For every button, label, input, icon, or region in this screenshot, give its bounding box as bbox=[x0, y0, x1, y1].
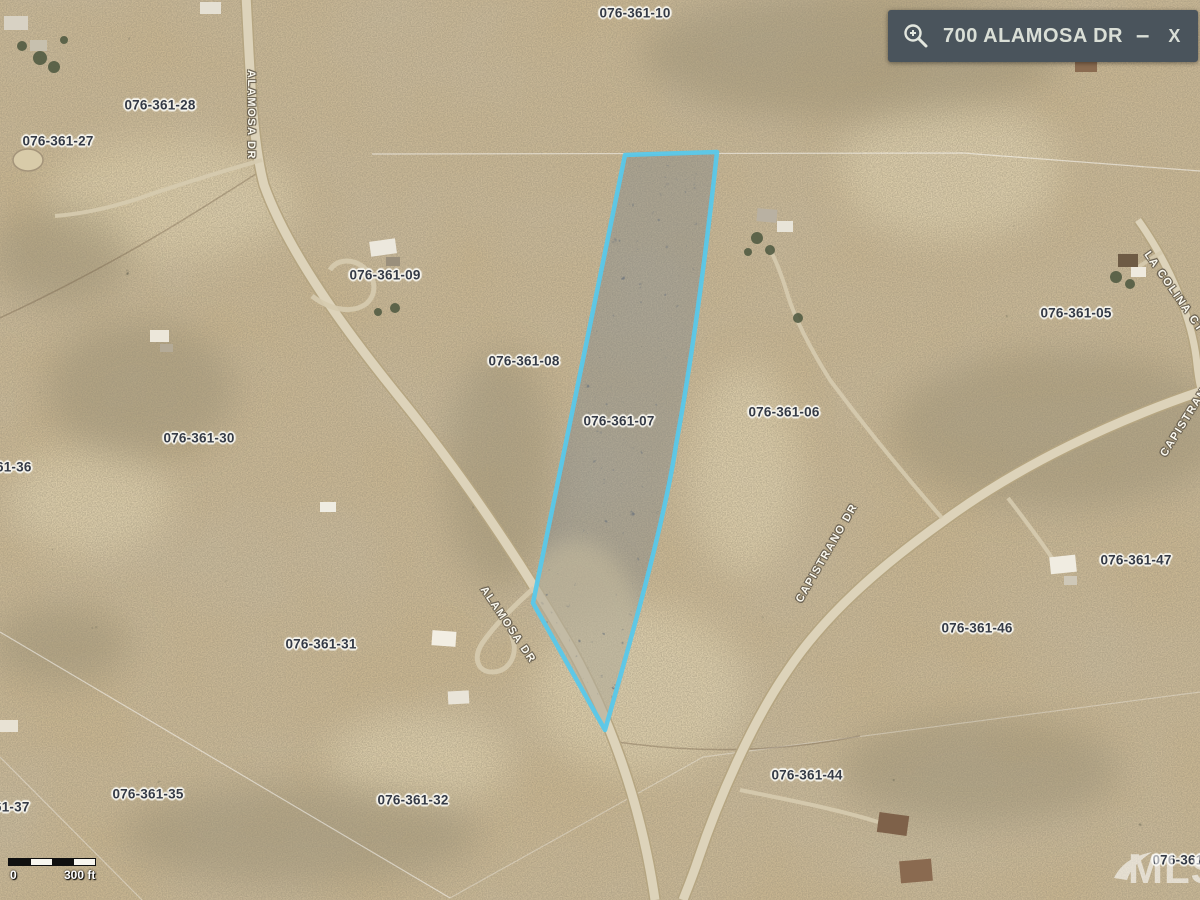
search-query-text: 700 ALAMOSA DR bbox=[943, 25, 1123, 48]
zoom-in-icon[interactable] bbox=[902, 22, 930, 50]
close-button[interactable]: X bbox=[1168, 27, 1180, 45]
map-scale-bar: 0 300 ft bbox=[8, 858, 118, 882]
search-result-panel: 700 ALAMOSA DR – X bbox=[888, 10, 1198, 62]
scale-start-label: 0 bbox=[10, 868, 17, 882]
mls-swoosh-icon bbox=[1112, 848, 1154, 882]
arena-feature bbox=[13, 149, 43, 171]
scale-bar-segments bbox=[8, 858, 96, 866]
minimize-button[interactable]: – bbox=[1136, 24, 1149, 48]
satellite-map bbox=[0, 0, 1200, 900]
map-viewport[interactable]: 076-361-10076-361-28076-361-27076-361-09… bbox=[0, 0, 1200, 900]
mls-watermark: MLS bbox=[1128, 848, 1200, 890]
scale-end-label: 300 ft bbox=[64, 868, 95, 882]
